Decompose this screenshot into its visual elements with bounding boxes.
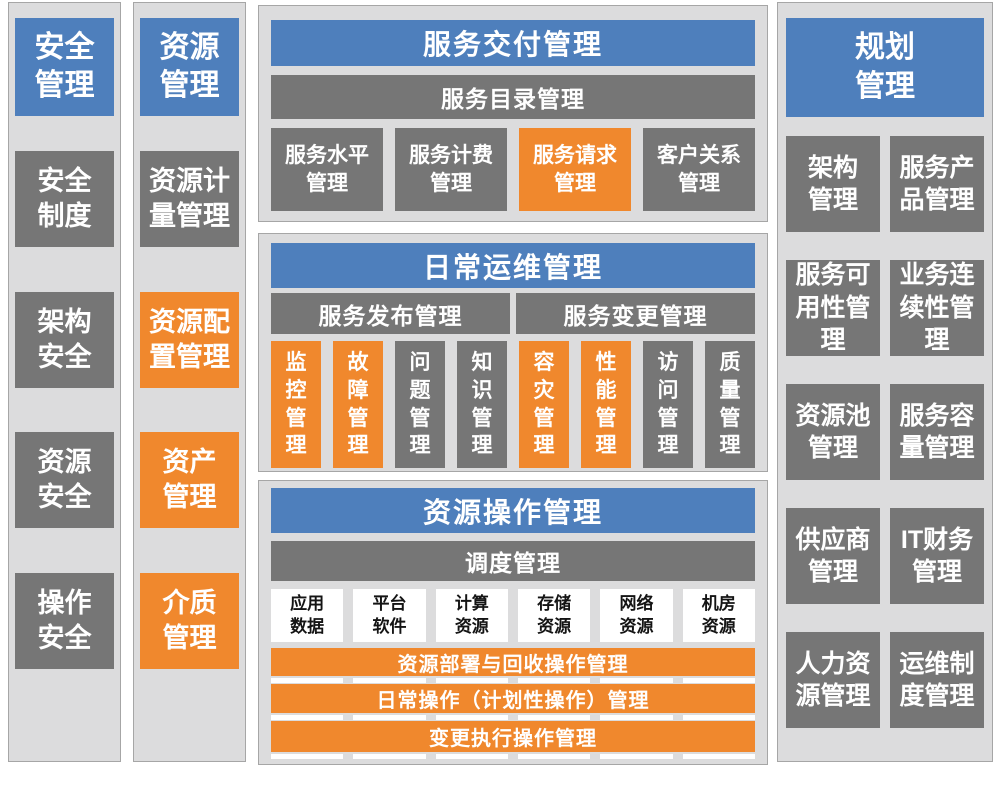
planning-management-header: 规划 管理: [786, 18, 984, 117]
it-management-framework-diagram: 安全 管理 安全 制度 架构 安全 资源 安全 操作 安全 资源 管理 资源计 …: [0, 0, 1000, 785]
daily-operations-bars: 服务发布管理 服务变更管理: [271, 293, 755, 334]
service-availability-management-block: 服务可 用性管 理: [786, 260, 880, 356]
security-item-operation: 操作 安全: [15, 573, 114, 669]
resource-operations-panel: 资源操作管理 调度管理 应用 数据 平台 软件 计算 资源 存储 资源 网络 资…: [258, 480, 768, 765]
service-catalog-bar: 服务目录管理: [271, 75, 755, 119]
customer-relation-block: 客户关系 管理: [643, 128, 755, 211]
planning-management-panel: 规划 管理 架构 管理 服务产 品管理 服务可 用性管 理 业务连 续性管 理 …: [777, 2, 993, 762]
datacenter-resource-block: 机房 资源: [683, 589, 755, 642]
disaster-recovery-block: 容 灾 管 理: [519, 341, 569, 468]
resource-item-media: 介质 管理: [140, 573, 239, 669]
quality-block: 质 量 管 理: [705, 341, 755, 468]
daily-planned-operations-bar: 日常操作（计划性操作）管理: [271, 684, 755, 713]
security-management-header: 安全 管理: [15, 18, 114, 116]
deploy-reclaim-operations-bar: 资源部署与回收操作管理: [271, 648, 755, 676]
ops-policy-management-block: 运维制 度管理: [890, 632, 984, 728]
monitoring-block: 监 控 管 理: [271, 341, 321, 468]
resource-item-asset: 资产 管理: [140, 432, 239, 528]
business-continuity-management-block: 业务连 续性管 理: [890, 260, 984, 356]
architecture-management-block: 架构 管理: [786, 136, 880, 232]
resource-pool-management-block: 资源池 管理: [786, 384, 880, 480]
access-block: 访 问 管 理: [643, 341, 693, 468]
daily-operations-header: 日常运维管理: [271, 243, 755, 288]
resource-management-header: 资源 管理: [140, 18, 239, 116]
security-item-policy: 安全 制度: [15, 151, 114, 247]
resource-item-metering: 资源计 量管理: [140, 151, 239, 247]
security-management-panel: 安全 管理 安全 制度 架构 安全 资源 安全 操作 安全: [8, 2, 121, 762]
resource-item-configuration: 资源配 置管理: [140, 292, 239, 388]
security-item-resource: 资源 安全: [15, 432, 114, 528]
service-capacity-management-block: 服务容 量管理: [890, 384, 984, 480]
supplier-management-block: 供应商 管理: [786, 508, 880, 604]
service-product-management-block: 服务产 品管理: [890, 136, 984, 232]
storage-resource-block: 存储 资源: [518, 589, 590, 642]
service-change-bar: 服务变更管理: [516, 293, 755, 334]
resource-types-row: 应用 数据 平台 软件 计算 资源 存储 资源 网络 资源 机房 资源: [271, 589, 755, 642]
it-finance-management-block: IT财务 管理: [890, 508, 984, 604]
service-request-block: 服务请求 管理: [519, 128, 631, 211]
column-strip: [271, 715, 755, 720]
service-billing-block: 服务计费 管理: [395, 128, 507, 211]
daily-operations-row: 监 控 管 理 故 障 管 理 问 题 管 理 知 识 管 理 容 灾 管 理 …: [271, 341, 755, 468]
service-release-bar: 服务发布管理: [271, 293, 510, 334]
daily-operations-panel: 日常运维管理 服务发布管理 服务变更管理 监 控 管 理 故 障 管 理 问 题…: [258, 233, 768, 472]
column-strip: [271, 754, 755, 759]
application-data-block: 应用 数据: [271, 589, 343, 642]
security-item-architecture: 架构 安全: [15, 292, 114, 388]
service-delivery-header: 服务交付管理: [271, 20, 755, 66]
resource-operations-header: 资源操作管理: [271, 488, 755, 533]
dispatch-management-bar: 调度管理: [271, 541, 755, 581]
column-strip: [271, 678, 755, 683]
resource-management-panel: 资源 管理 资源计 量管理 资源配 置管理 资产 管理 介质 管理: [133, 2, 246, 762]
network-resource-block: 网络 资源: [600, 589, 672, 642]
knowledge-block: 知 识 管 理: [457, 341, 507, 468]
compute-resource-block: 计算 资源: [436, 589, 508, 642]
service-delivery-panel: 服务交付管理 服务目录管理 服务水平 管理 服务计费 管理 服务请求 管理 客户…: [258, 5, 768, 222]
problem-block: 问 题 管 理: [395, 341, 445, 468]
service-level-block: 服务水平 管理: [271, 128, 383, 211]
performance-block: 性 能 管 理: [581, 341, 631, 468]
human-resource-management-block: 人力资 源管理: [786, 632, 880, 728]
platform-software-block: 平台 软件: [353, 589, 425, 642]
incident-block: 故 障 管 理: [333, 341, 383, 468]
service-delivery-row: 服务水平 管理 服务计费 管理 服务请求 管理 客户关系 管理: [271, 128, 755, 211]
change-execution-operations-bar: 变更执行操作管理: [271, 721, 755, 752]
planning-grid: 架构 管理 服务产 品管理 服务可 用性管 理 业务连 续性管 理 资源池 管理…: [786, 136, 984, 728]
